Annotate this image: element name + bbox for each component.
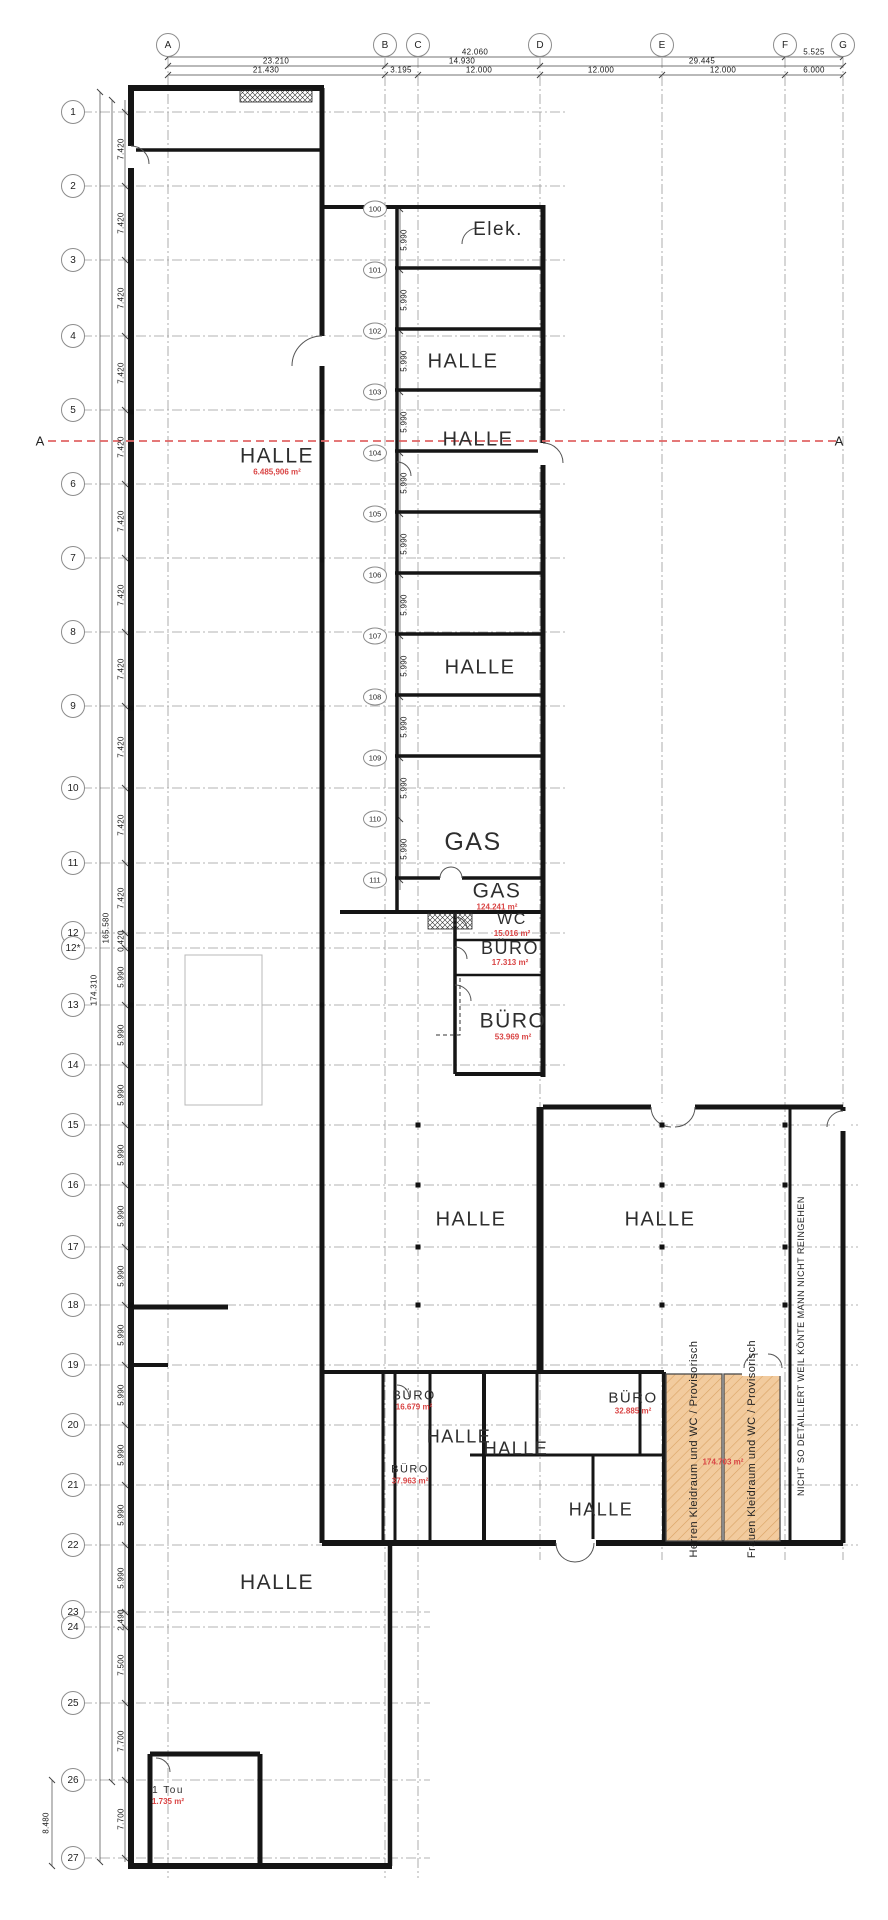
stair-hatch [428, 913, 472, 929]
walls [128, 85, 843, 1869]
floorplan-drawing [0, 0, 888, 1920]
dimension-lines [49, 54, 846, 1869]
fixture-hatch-top [240, 90, 312, 102]
columns [129, 410, 788, 1308]
storage-outline [185, 955, 262, 1105]
grid-lines [82, 58, 858, 1878]
floor-plan-page: ABCDEFG 12345678910111212*13141516171819… [0, 0, 888, 1920]
provisional-rooms [666, 1374, 780, 1541]
door-openings [127, 146, 849, 1548]
